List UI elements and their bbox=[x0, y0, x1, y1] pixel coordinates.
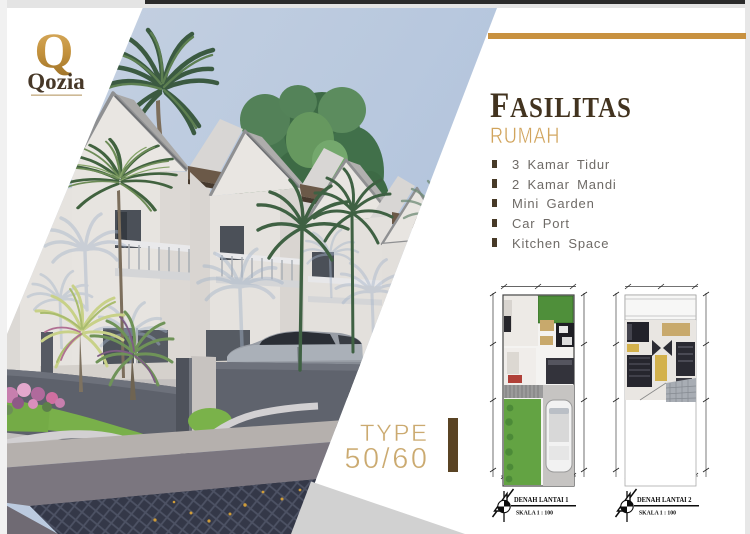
svg-text:SKALA 1 : 100: SKALA 1 : 100 bbox=[639, 510, 677, 517]
svg-text:SKALA 1 : 100: SKALA 1 : 100 bbox=[516, 510, 554, 517]
svg-text:DENAH LANTAI 1: DENAH LANTAI 1 bbox=[514, 495, 569, 504]
svg-text:DENAH LANTAI 2: DENAH LANTAI 2 bbox=[637, 495, 692, 504]
svg-text:Qozia: Qozia bbox=[27, 69, 85, 94]
